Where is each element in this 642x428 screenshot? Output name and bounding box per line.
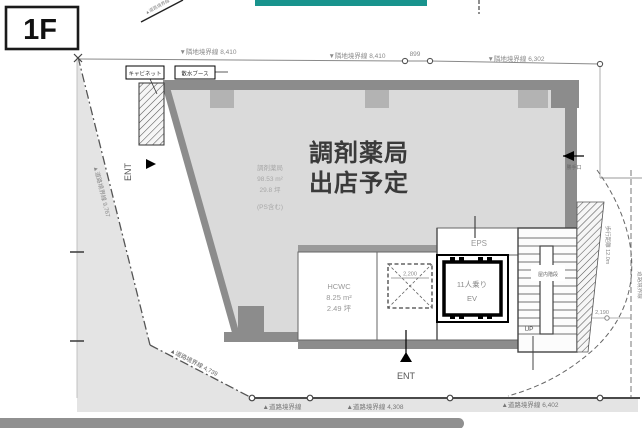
bottom-dim-1: ▲道路境界線: [263, 402, 302, 411]
walking-distance-label: 歩行距離 12.0m: [604, 226, 612, 265]
right-hatched-wedge: [577, 202, 604, 352]
hcwc-tsubo: 2.49 坪: [327, 304, 352, 313]
floor-title-label: 1F: [23, 14, 57, 46]
water-booth-label: 散水ブース: [181, 70, 208, 78]
floor-plan-page: ▲道路境界線 2,200: [0, 0, 642, 428]
hcwc-area: 8.25 m²: [326, 293, 352, 302]
entrance-left-arrow-icon: [146, 159, 156, 169]
eps-label: EPS: [471, 239, 487, 248]
cabinet-hatch: [139, 83, 164, 145]
entrance-left-label: ENT: [123, 162, 133, 181]
top-dim-1: ▼隣地境界線 8,410: [179, 47, 236, 56]
horizontal-scrollbar[interactable]: [0, 418, 464, 428]
tenant-info-note: (PS含む): [257, 202, 283, 211]
ps-dimension-label: 2,200: [403, 272, 417, 278]
entrance-bottom-label: ENT: [397, 371, 416, 381]
elevator-capacity-label: 11人乗り: [457, 279, 487, 289]
right-dimension-label: 2,190: [595, 310, 609, 316]
corner-column: [551, 80, 579, 108]
tenant-info-area: 98.53 m²: [257, 176, 283, 183]
column: [210, 90, 234, 108]
bottom-dim-3: ▲道路境界線 6,402: [501, 400, 558, 409]
right-boundary-label: 道路境界線: [636, 271, 642, 299]
stair-note-label: 屋内階段: [538, 271, 558, 278]
top-dim-3: 899: [410, 51, 421, 58]
hcwc-name: HCWC: [327, 282, 351, 291]
entrance-left: ENT: [123, 159, 156, 181]
cabinet-label: キャビネット: [128, 70, 161, 78]
top-wall: [163, 80, 579, 90]
hcwc-labels: HCWC 8.25 m² 2.49 坪: [326, 282, 352, 313]
tenant-title-line1: 調剤薬局: [309, 139, 409, 167]
bottom-dim-2: ▲道路境界線 4,308: [346, 402, 403, 411]
elevator-shaft: 11人乗り EV: [437, 255, 508, 322]
top-dim-4: ▼隣地境界線 6,302: [487, 54, 544, 63]
stair-up-label: UP: [524, 326, 533, 333]
column: [238, 306, 264, 332]
tenant-info-tsubo: 29.8 坪: [260, 186, 281, 194]
top-dim-2: ▼隣地境界線 8,410: [328, 51, 385, 60]
entrance-bottom-arrow-icon: [400, 352, 412, 362]
bottom-wall-left: [224, 332, 302, 342]
elevator-label: EV: [467, 294, 477, 303]
tenant-info-name: 調剤薬局: [257, 163, 283, 172]
back-door-label: 勝手口: [566, 164, 581, 171]
teal-top-bar: [255, 0, 427, 6]
tenant-title-line2: 出店予定: [309, 169, 409, 197]
staircase: 屋内階段 UP: [518, 228, 577, 370]
floor-title: 1F: [6, 7, 78, 49]
bottom-wall-center: [298, 340, 520, 349]
column: [518, 90, 548, 108]
floor-plan-drawing: ▲道路境界線 2,200: [0, 0, 642, 428]
column: [365, 90, 389, 108]
